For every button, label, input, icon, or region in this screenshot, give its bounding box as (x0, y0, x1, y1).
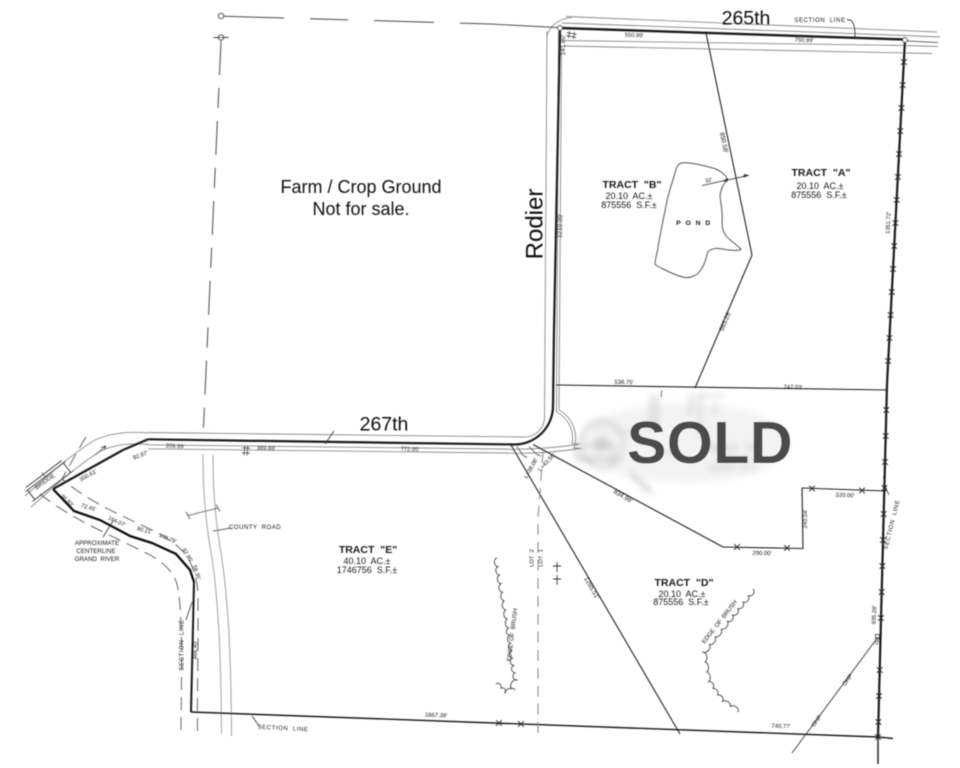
svg-text:240.04': 240.04' (803, 510, 809, 529)
svg-text:CENTERLINE: CENTERLINE (76, 548, 115, 555)
svg-text:APPROXIMATE: APPROXIMATE (75, 540, 119, 547)
svg-text:875556 S.F.±: 875556 S.F.± (601, 200, 657, 210)
svg-text:TRACT "D": TRACT "D" (655, 577, 714, 589)
svg-text:1867.38': 1867.38' (425, 713, 448, 720)
svg-text:LOT 1: LOT 1 (539, 549, 545, 567)
svg-text:536.75': 536.75' (614, 380, 633, 386)
svg-text:TRACT "E": TRACT "E" (339, 544, 397, 556)
svg-text:750.99': 750.99' (795, 38, 814, 45)
svg-text:1210.09': 1210.09' (557, 214, 565, 239)
svg-text:389.89': 389.89' (257, 446, 276, 453)
svg-text:TRACT "B": TRACT "B" (603, 179, 662, 191)
svg-text:265th: 265th (722, 8, 771, 30)
svg-text:Rodier: Rodier (522, 189, 549, 260)
svg-text:P O N D: P O N D (676, 220, 712, 227)
svg-text:772.95': 772.95' (401, 447, 420, 454)
svg-text:L=49.52': L=49.52' (588, 423, 613, 430)
svg-text:747.03': 747.03' (783, 385, 802, 391)
svg-text:SECTION LINE: SECTION LINE (794, 18, 845, 24)
svg-text:1351.72': 1351.72' (886, 212, 893, 234)
svg-text:466.40': 466.40' (193, 641, 199, 660)
svg-text:267th: 267th (360, 414, 409, 436)
svg-text:LOT 2: LOT 2 (530, 549, 536, 567)
svg-text:GRAND RIVER: GRAND RIVER (75, 556, 120, 563)
svg-text:550.99': 550.99' (625, 33, 644, 40)
svg-text:SOLD: SOLD (627, 410, 793, 476)
svg-text:320.00': 320.00' (835, 493, 854, 500)
svg-text:Farm / Crop Ground: Farm / Crop Ground (280, 177, 441, 197)
svg-text:1363.76': 1363.76' (700, 393, 725, 400)
svg-text:TRACT "A": TRACT "A" (792, 167, 851, 179)
svg-text:209.99': 209.99' (165, 444, 184, 451)
svg-text:935.28': 935.28' (872, 605, 879, 624)
svg-text:740.77': 740.77' (771, 724, 790, 731)
svg-text:875556 S.F.±: 875556 S.F.± (791, 190, 847, 200)
svg-text:1746756 S.F.±: 1746756 S.F.± (337, 565, 398, 575)
svg-text:COUNTY ROAD: COUNTY ROAD (229, 524, 281, 531)
svg-text:GRAVEL DRIVE: GRAVEL DRIVE (580, 459, 622, 465)
svg-text:290.00': 290.00' (752, 551, 771, 557)
svg-text:141.80': 141.80' (560, 35, 567, 56)
svg-text:Not for sale.: Not for sale. (312, 199, 409, 219)
svg-text:SECTION LINE: SECTION LINE (180, 619, 186, 670)
svg-text:875556 S.F.±: 875556 S.F.± (653, 597, 709, 607)
